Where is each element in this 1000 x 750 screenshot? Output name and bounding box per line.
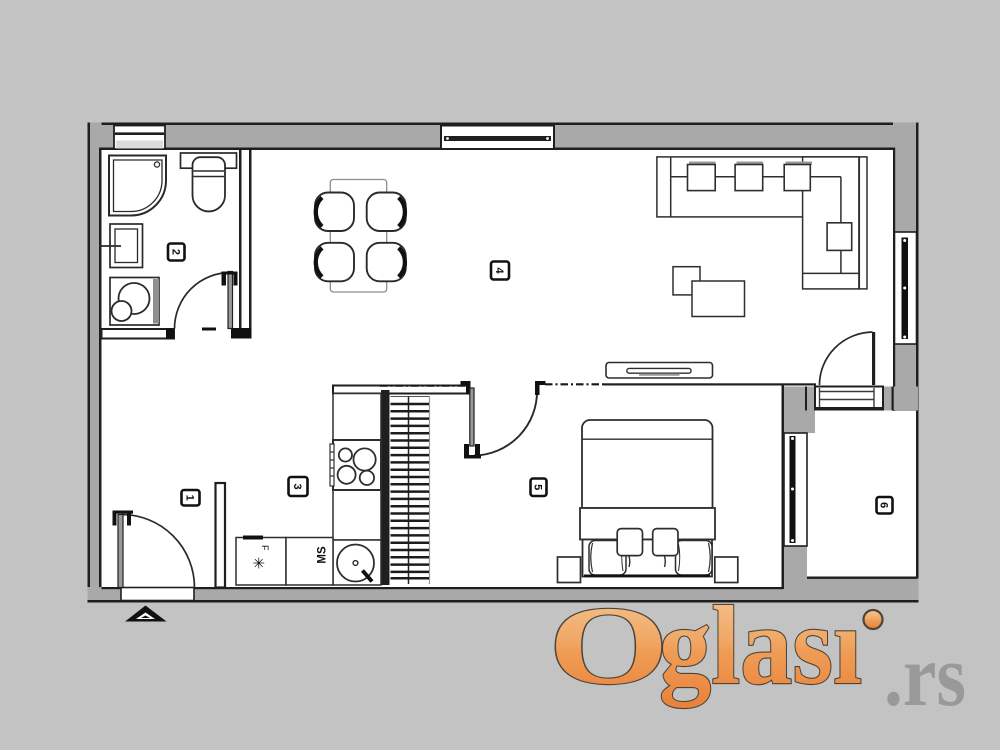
svg-text:6: 6 <box>878 502 890 508</box>
svg-text:5: 5 <box>532 484 544 490</box>
svg-text:✳: ✳ <box>253 556 266 573</box>
svg-text:1: 1 <box>184 495 196 501</box>
svg-text:2: 2 <box>169 249 181 255</box>
svg-text:O: O <box>549 584 669 708</box>
svg-text:4: 4 <box>493 267 505 274</box>
svg-text:.rs: .rs <box>884 628 966 725</box>
svg-text:glası: glası <box>659 584 862 708</box>
svg-text:F: F <box>260 545 270 551</box>
svg-text:3: 3 <box>291 483 303 489</box>
svg-text:MS: MS <box>317 546 329 564</box>
